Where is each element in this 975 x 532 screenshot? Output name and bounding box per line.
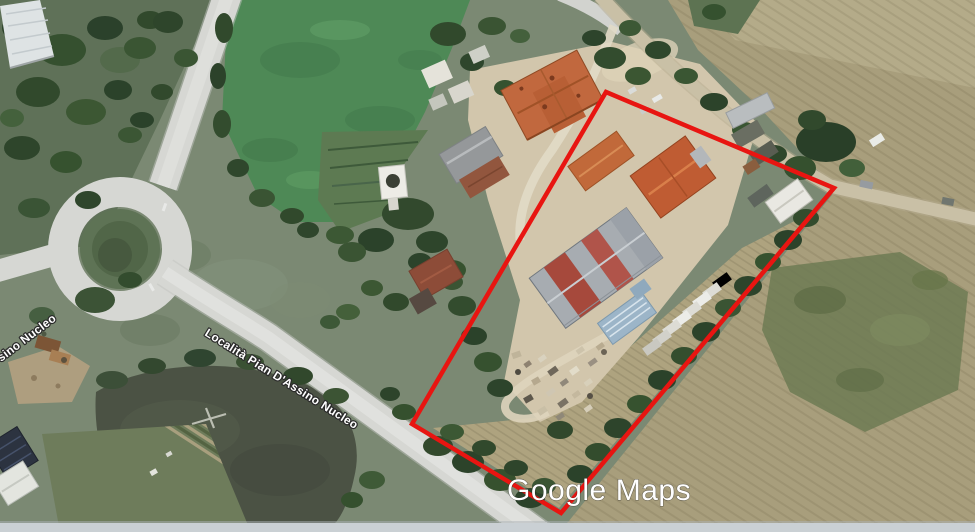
map-viewport[interactable]: Località Pian D'Assino Nucleo sino Nucle…	[0, 0, 975, 532]
google-maps-watermark[interactable]: GoogleMaps	[507, 474, 691, 507]
bottom-edge-strip	[0, 523, 975, 532]
satellite-map[interactable]: Località Pian D'Assino Nucleo sino Nucle…	[0, 0, 975, 532]
google-logo-text: Google	[507, 474, 607, 507]
